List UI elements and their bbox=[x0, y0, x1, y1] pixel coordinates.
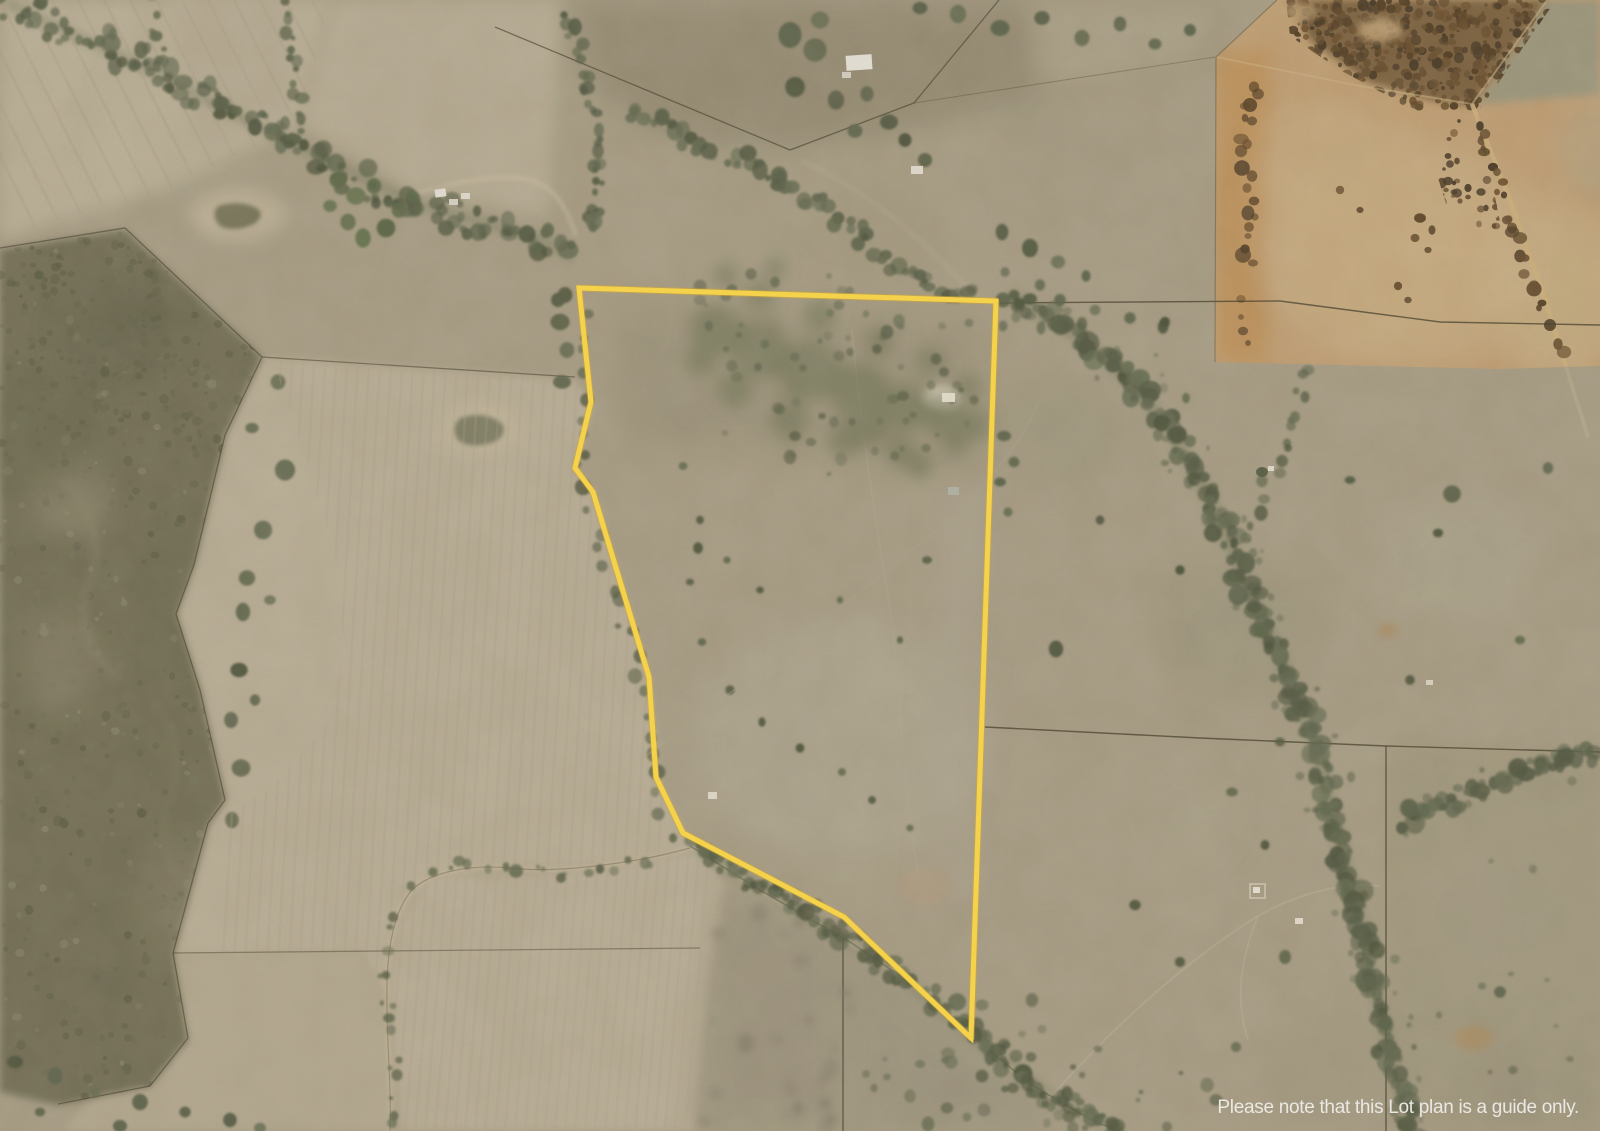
svg-text:Please note that this Lot plan: Please note that this Lot plan is a guid… bbox=[1217, 1097, 1579, 1118]
